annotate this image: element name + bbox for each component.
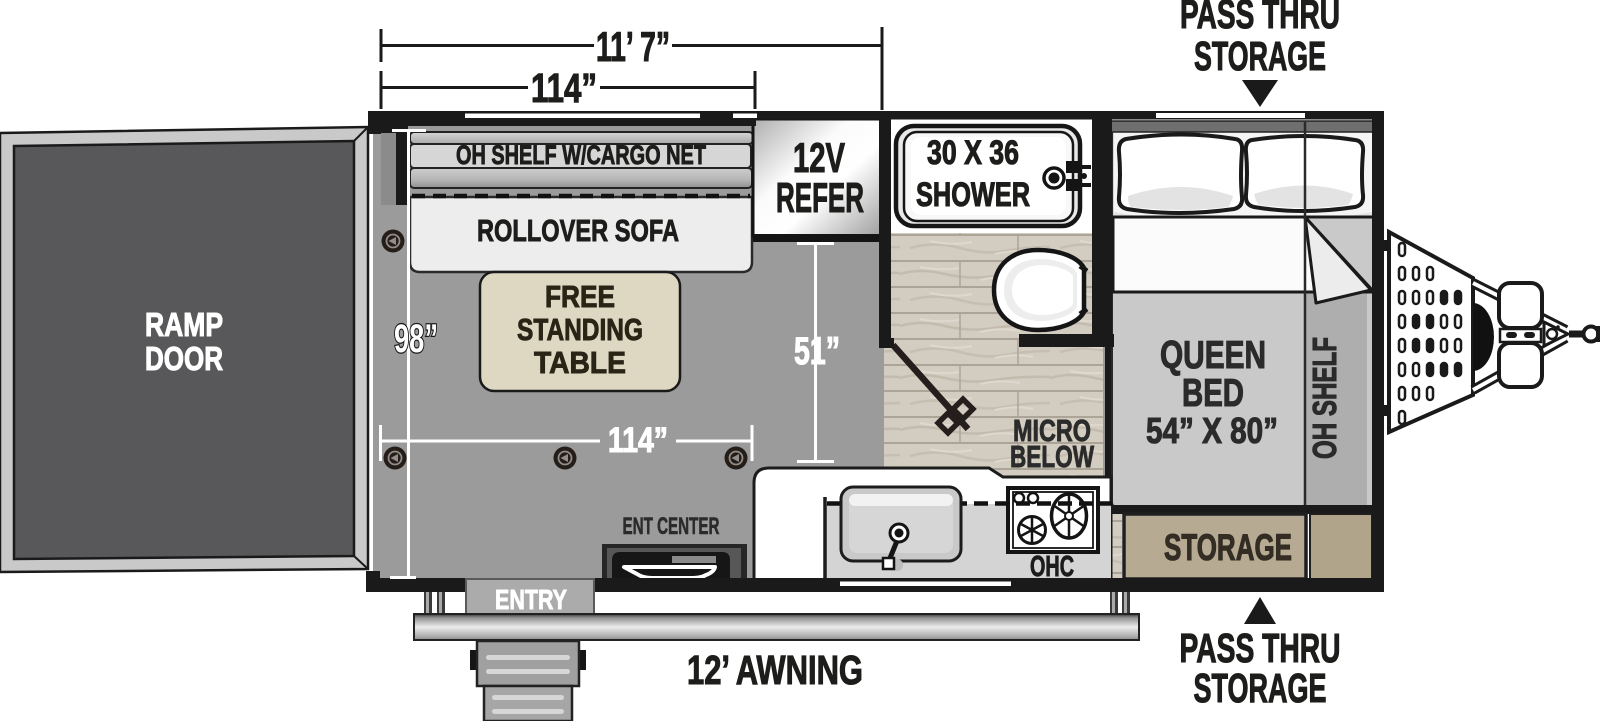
svg-text:OH SHELF: OH SHELF (1306, 337, 1343, 459)
svg-text:STORAGE: STORAGE (1164, 527, 1292, 568)
svg-text:ENTRY: ENTRY (495, 584, 567, 615)
svg-text:ROLLOVER SOFA: ROLLOVER SOFA (477, 213, 679, 248)
svg-text:54” X 80”: 54” X 80” (1146, 410, 1278, 451)
svg-text:98”: 98” (394, 317, 438, 361)
svg-text:114”: 114” (608, 421, 668, 460)
svg-text:STORAGE: STORAGE (1194, 665, 1327, 711)
svg-text:STORAGE: STORAGE (1194, 33, 1326, 79)
svg-text:30 X 36: 30 X 36 (927, 134, 1019, 172)
svg-text:REFER: REFER (776, 174, 864, 221)
svg-text:BED: BED (1182, 372, 1244, 415)
svg-text:114”: 114” (531, 65, 597, 111)
svg-text:STANDING: STANDING (517, 312, 643, 347)
svg-text:FREE: FREE (545, 279, 615, 314)
svg-text:ENT CENTER: ENT CENTER (623, 513, 720, 540)
svg-text:SHOWER: SHOWER (916, 176, 1030, 214)
svg-text:BELOW: BELOW (1010, 439, 1095, 474)
svg-text:TABLE: TABLE (534, 345, 626, 380)
svg-text:11’ 7”: 11’ 7” (596, 23, 670, 70)
svg-text:QUEEN: QUEEN (1160, 334, 1266, 377)
svg-text:12’ AWNING: 12’ AWNING (687, 647, 863, 693)
svg-text:RAMP: RAMP (145, 306, 223, 343)
svg-text:OH SHELF W/CARGO NET: OH SHELF W/CARGO NET (456, 140, 706, 170)
svg-text:DOOR: DOOR (145, 340, 223, 377)
svg-text:51”: 51” (794, 330, 840, 373)
svg-text:PASS THRU: PASS THRU (1180, 0, 1340, 37)
